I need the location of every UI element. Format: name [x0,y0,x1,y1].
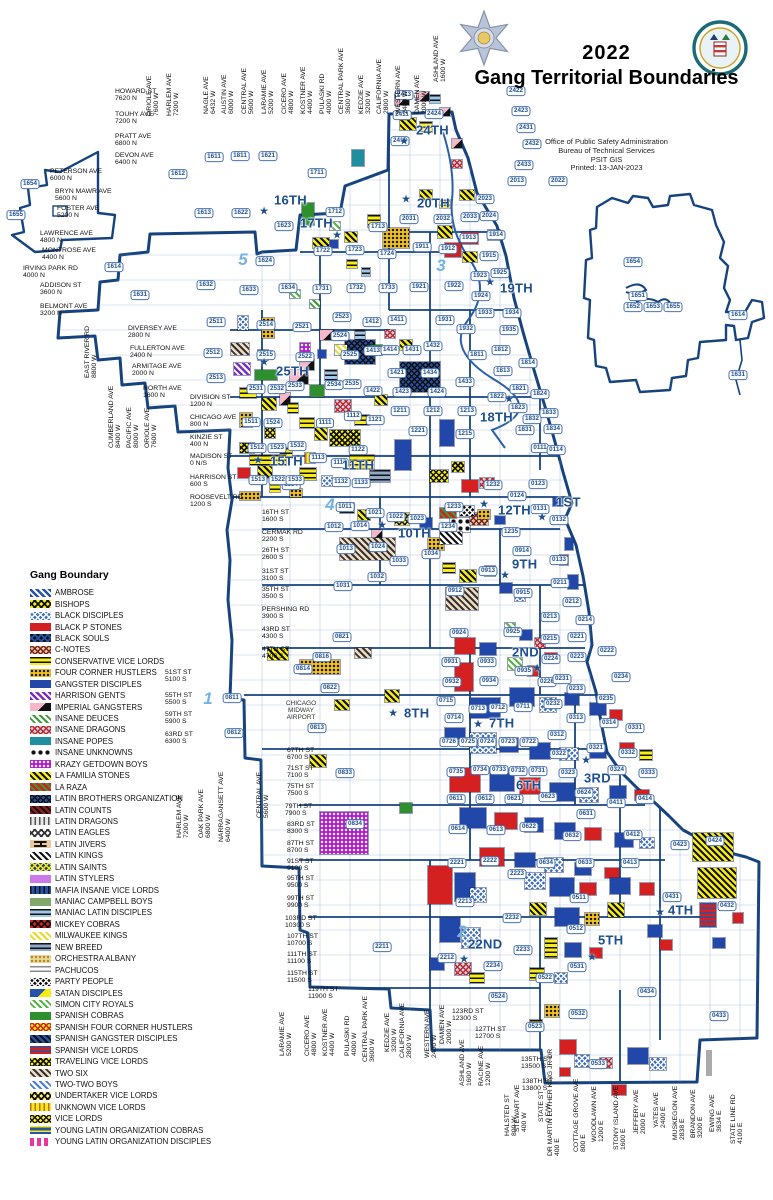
beat-number-label: 0413 [620,858,639,868]
street-name: PETERSON AVE [50,168,102,175]
beat-number-label: 1811 [231,151,250,161]
street-block-number: 11900 S [308,993,338,1000]
street-name: 111TH ST [287,951,317,958]
beat-number-label: 0512 [566,924,585,934]
beat-number-label: 2524 [330,331,349,341]
street-block-number: 6700 S [287,754,314,761]
street-name: 103RD ST [285,915,317,922]
street-label: 119TH ST11900 S [308,986,338,1000]
beat-number-label: 0634 [536,858,555,868]
beat-number-label: 1213 [457,406,476,416]
sector-number-label: 4 [325,495,334,515]
beat-number-label: 1533 [285,475,304,485]
legend-swatch-ylo_cobras [30,1126,51,1134]
beat-number-label: 1632 [196,280,215,290]
legend-item: LA FAMILIA STONES [30,770,265,781]
legend-item: LATIN BROTHERS ORGANIZATION [30,793,265,804]
beat-number-label: 1434 [420,368,439,378]
legend-label: INSANE DRAGONS [55,725,126,734]
beat-number-label: 0212 [562,597,581,607]
legend-swatch-latin_kings [30,852,51,860]
street-name: CALIFORNIA AVE [399,1003,406,1058]
street-name: 26TH ST [262,547,289,554]
street-name: MUSKEGON AVE [672,1086,679,1140]
street-label: PETERSON AVE6000 N [50,168,102,182]
legend-item: MAFIA INSANE VICE LORDS [30,884,265,895]
district-label-17th: 17TH [300,216,333,231]
beat-number-label: 2423 [511,106,530,116]
beat-number-label: 1523 [267,443,286,453]
street-block-number: 1600 N [143,392,182,399]
legend-swatch-imperial_gangsters [30,703,51,711]
beat-number-label: 1711 [308,168,327,178]
beat-number-label: 1433 [455,377,474,387]
beat-number-label: 1021 [365,508,384,518]
beat-number-label: 1935 [499,325,518,335]
police-station-star-icon: ★ [581,756,591,767]
beat-number-label: 2431 [516,123,535,133]
street-block-number: 1200 N [190,401,230,408]
beat-number-label: 0313 [566,713,585,723]
beat-number-label: 0714 [444,713,463,723]
scale-bar [706,1050,712,1076]
beat-number-label: 0632 [562,831,581,841]
beat-number-label: 1932 [456,324,475,334]
street-name: LAWRENCE AVE [40,230,93,237]
street-name: 95TH ST [287,875,314,882]
legend-label: TWO-TWO BOYS [55,1080,118,1089]
legend-swatch-milwaukee_kings [30,932,51,940]
street-name: JEFFERY AVE [633,1089,640,1134]
street-label-vertical: PACIFIC AVE8000 W [126,407,140,448]
map-page: CHICAGO MIDWAY AIRPORT 16541655161116121… [0,0,773,1200]
street-label: 26TH ST2600 S [262,547,289,561]
street-name: KOSTNER AVE [300,67,307,114]
street-name: WESTERN AVE [395,65,402,114]
district-label-12th: 12TH [498,503,531,518]
beat-number-label: 1613 [194,208,213,218]
district-label-19th: 19TH [500,281,533,296]
street-name: STATE LINE RD [730,1094,737,1144]
beat-number-label: 0932 [442,677,461,687]
beat-number-label: 0735 [446,767,465,777]
street-block-number: 3200 W [391,1013,398,1052]
street-label-vertical: NAGLE AVE6432 W [203,76,217,114]
beat-number-label: 0411 [607,798,626,808]
police-station-star-icon: ★ [479,500,489,511]
beat-number-label: 2024 [479,211,498,221]
legend-item: SATAN DISCIPLES [30,987,265,998]
legend-swatch-orchestra_albany [30,955,51,963]
legend-label: BISHOPS [55,600,90,609]
street-label: 107TH ST10700 S [287,933,318,947]
legend-item: LATIN DRAGONS [30,816,265,827]
legend-swatch-conservative_vice_lords [30,657,51,665]
police-station-star-icon: ★ [587,953,597,964]
legend-item: IMPERIAL GANGSTERS [30,701,265,712]
legend-swatch-mafia_insane_vice_lords [30,886,51,894]
beat-number-label: 0412 [623,830,642,840]
legend-item: MANIAC CAMPBELL BOYS [30,896,265,907]
police-station-star-icon: ★ [399,137,409,148]
beat-number-label: 1524 [263,418,282,428]
street-label: 115TH ST11500 S [287,970,317,984]
street-block-number: 7600 W [153,76,160,116]
beat-number-label: 0631 [576,809,595,819]
legend-item: LATIN COUNTS [30,804,265,815]
beat-number-label: 0813 [307,723,326,733]
street-label-vertical: DAMEN AVE2000 W [414,75,428,114]
street-label: 123RD ST12300 S [452,1008,484,1022]
street-label: 103RD ST10300 S [285,915,317,929]
legend-label: SPANISH GANGSTER DISCIPLES [55,1034,177,1043]
street-block-number: 12300 S [452,1015,484,1022]
street-name: ASHLAND AVE [459,1039,466,1086]
beat-number-label: 1232 [483,480,502,490]
beat-number-label: 0733 [489,765,508,775]
beat-number-label: 0221 [567,632,586,642]
beat-number-label: 1651 [628,291,647,301]
legend-item: CONSERVATIVE VICE LORDS [30,656,265,667]
beat-number-label: 1631 [728,370,747,380]
beat-number-label: 2512 [203,348,222,358]
street-label-vertical: CENTRAL PARK AVE3600 W [338,48,352,114]
legend-swatch-black_p_stones [30,623,51,631]
street-name: COTTAGE GROVE AVE [573,1079,580,1152]
legend-label: ORCHESTRA ALBANY [55,954,136,963]
street-name: EWING AVE [709,1094,716,1132]
street-name: BRYN MAWR AVE [55,188,112,195]
street-block-number: 7200 N [115,118,153,125]
beat-number-label: 2232 [502,913,521,923]
beat-number-label: 0434 [637,987,656,997]
beat-number-label: 1724 [377,249,396,259]
street-name: BRANDON AVE [690,1089,697,1138]
beat-number-label: 0432 [717,901,736,911]
beat-number-label: 0925 [503,627,522,637]
beat-number-label: 0933 [477,657,496,667]
beat-number-label: 1731 [312,284,331,294]
beat-number-label: 0621 [504,794,523,804]
street-label: 95TH ST9500 S [287,875,314,889]
beat-number-label: 1831 [515,425,534,435]
legend-swatch-traveling_vice_lords [30,1058,51,1066]
street-name: STONY ISLAND AVE [613,1086,620,1150]
legend-item: SPANISH COBRAS [30,1010,265,1021]
legend-label: LA RAZA [55,783,87,792]
legend-item: LA RAZA [30,781,265,792]
street-name: 71ST ST [287,765,314,772]
beat-number-label: 2031 [399,214,418,224]
beat-number-label: 2511 [207,317,226,327]
street-block-number: 7600 W [151,408,158,448]
legend-swatch-new_breed [30,943,51,951]
legend-label: TRAVELING VICE LORDS [55,1057,148,1066]
beat-number-label: 2532 [267,384,286,394]
street-label: 83RD ST8300 S [287,821,315,835]
beat-number-label: 0622 [519,822,538,832]
street-name: WOODLAWN AVE [591,1086,598,1142]
street-name: KOSTNER AVE [322,1009,329,1056]
legend-swatch-harrison_gents [30,692,51,700]
beat-number-label: 1031 [333,581,352,591]
street-label-vertical: WOODLAWN AVE1200 E [591,1086,605,1142]
legend-swatch-c_notes [30,646,51,654]
street-block-number: 3634 E [716,1094,723,1132]
street-block-number: 4800 W [311,1015,318,1056]
street-block-number: 2400 N [130,352,185,359]
police-station-star-icon: ★ [500,571,510,582]
beat-number-label: 0915 [513,588,532,598]
beat-number-label: 0322 [549,749,568,759]
legend-label: UNDERTAKER VICE LORDS [55,1091,157,1100]
beat-number-label: 0731 [528,766,547,776]
beat-number-label: 0821 [332,632,351,642]
beat-number-label: 0214 [575,615,594,625]
beat-number-label: 2513 [206,373,225,383]
street-block-number: 3500 S [262,593,289,600]
street-name: PRATT AVE [115,133,151,140]
beat-number-label: 1623 [274,221,293,231]
street-block-number: 3600 N [40,289,82,296]
street-block-number: 1600 W [466,1039,473,1086]
legend-swatch-insane_dragons [30,726,51,734]
beat-number-label: 0235 [596,694,615,704]
legend-item: TWO SIX [30,1067,265,1078]
street-block-number: 7900 S [285,810,312,817]
midway-airport-label: CHICAGO MIDWAY AIRPORT [278,700,324,721]
legend-item: INSANE POPES [30,736,265,747]
beat-number-label: 1612 [168,169,187,179]
beat-number-label: 0614 [448,824,467,834]
street-block-number: 9100 S [287,865,314,872]
police-station-star-icon: ★ [655,908,665,919]
beat-number-label: 1532 [287,441,306,451]
police-station-star-icon: ★ [259,207,269,218]
legend-item: SIMON CITY ROYALS [30,999,265,1010]
district-label-5th: 5TH [598,933,623,948]
legend-swatch-bishops [30,600,51,608]
street-name: STATE ST [538,1091,545,1122]
street-label: 111TH ST11100 S [287,951,317,965]
street-block-number: 2000 W [421,75,428,114]
beat-number-label: 0215 [540,634,559,644]
beat-number-label: 2531 [246,384,265,394]
street-name: 35TH ST [262,586,289,593]
legend-swatch-spanish_cobras [30,1012,51,1020]
police-station-star-icon: ★ [401,195,411,206]
beat-number-label: 1414 [380,345,399,355]
street-block-number: 12700 S [475,1033,506,1040]
street-name: CICERO AVE [304,1015,311,1056]
beat-number-label: 0424 [705,836,724,846]
beat-number-label: 0533 [588,1059,607,1069]
street-name: HARRISON ST [190,474,236,481]
beat-number-label: 1931 [435,315,454,325]
street-label: PERSHING RD3900 S [262,606,309,620]
legend-item: SPANISH GANGSTER DISCIPLES [30,1033,265,1044]
street-block-number: 2600 S [262,554,289,561]
legend-swatch-two_two_boys [30,1081,51,1089]
legend-label: INSANE POPES [55,737,113,746]
legend-swatch-spanish_gangster_disciples [30,1035,51,1043]
street-block-number: 4800 W [288,73,295,114]
legend-swatch-insane_deuces [30,715,51,723]
legend-swatch-party_people [30,978,51,986]
street-block-number: 9500 S [287,882,314,889]
street-label: DEVON AVE6400 N [115,152,154,166]
street-block-number: 4000 W [351,1016,358,1056]
police-station-star-icon: ★ [332,231,342,242]
street-name: PULASKI RD [344,1016,351,1056]
beat-number-label: 1622 [231,208,250,218]
street-name: ROOSEVELT RD [190,494,243,501]
street-label-vertical: KEDZIE AVE3200 W [384,1013,398,1052]
district-label-8th: 8TH [404,706,429,721]
street-label-vertical: KOSTNER AVE4400 W [322,1009,336,1056]
district-label-22nd: 22ND [468,937,502,952]
district-label-2nd: 2ND [512,645,539,660]
beat-number-label: 1624 [255,256,274,266]
beat-number-label: 2521 [292,322,311,332]
legend-swatch-insane_unknowns [30,749,51,757]
beat-number-label: 2211 [373,942,392,952]
beat-number-label: 1221 [408,426,427,436]
street-block-number: 1200 S [190,501,243,508]
legend-item: LATIN KINGS [30,850,265,861]
street-label: 47TH ST4700 S [262,646,289,660]
street-label-vertical: AUSTIN AVE6000 W [221,74,235,114]
beat-number-label: 2033 [460,212,479,222]
beat-number-label: 1621 [258,151,277,161]
street-label: 91ST ST9100 S [287,858,314,872]
legend-swatch-simon_city_royals [30,1000,51,1008]
street-block-number: 4400 N [42,254,96,261]
beat-number-label: 2533 [285,381,304,391]
beat-number-label: 1732 [346,283,365,293]
street-label-vertical: CALIFORNIA AVE2800 W [376,59,390,114]
beat-number-label: 1914 [486,230,505,240]
beat-number-label: 1012 [324,522,343,532]
street-block-number: 2400 E [660,1092,667,1128]
street-block-number: 2400 W [431,1009,438,1058]
legend-item: C-NOTES [30,644,265,655]
beat-number-label: 0223 [567,652,586,662]
beat-number-label: 0132 [549,515,568,525]
street-label-vertical: LARAMIE AVE5200 W [279,1012,293,1056]
street-label: ADDISON ST3600 N [40,282,82,296]
legend-title: Gang Boundary [30,569,265,581]
beat-number-label: 1513 [248,475,267,485]
legend-item: SPANISH VICE LORDS [30,1045,265,1056]
beat-number-label: 2222 [480,856,499,866]
street-name: 87TH ST [287,840,314,847]
legend-swatch-pachucos [30,966,51,974]
beat-number-label: 0934 [479,676,498,686]
street-block-number: 7200 W [173,73,180,116]
legend-item: BISHOPS [30,598,265,609]
street-block-number: 3100 S [262,575,289,582]
street-block-number: 4400 W [307,67,314,114]
legend-label: MILWAUKEE KINGS [55,931,127,940]
beat-number-label: 1924 [471,291,490,301]
beat-number-label: 1614 [728,310,747,320]
beat-number-label: 1111 [316,418,334,428]
street-label-vertical: STEWART AVE400 W [514,1085,528,1132]
street-label-vertical: WESTERN AVE2400 W [395,65,409,114]
beat-number-label: 1412 [362,317,381,327]
beat-number-label: 1813 [493,366,512,376]
legend-label: INSANE DEUCES [55,714,119,723]
beat-number-label: 0724 [477,737,496,747]
street-label: 79TH ST7900 S [285,803,312,817]
street-label-vertical: STONY ISLAND AVE1600 E [613,1086,627,1150]
street-name: IRVING PARK RD [23,265,78,272]
beat-number-label: 0333 [638,768,657,778]
street-block-number: 400 N [190,441,222,448]
beat-number-label: 1634 [278,283,297,293]
legend-item: LATIN EAGLES [30,827,265,838]
street-block-number: 5200 W [286,1012,293,1056]
street-name: 43RD ST [262,626,290,633]
beat-number-label: 1423 [392,387,411,397]
street-label-vertical: YATES AVE2400 E [653,1092,667,1128]
street-block-number: 2800 W [406,1003,413,1058]
beat-number-label: 0414 [635,794,654,804]
beat-number-label: 1934 [502,308,521,318]
street-label-vertical: KEDZIE AVE3200 W [358,75,372,114]
street-name: PACIFIC AVE [126,407,133,448]
street-label: 71ST ST7100 S [287,765,314,779]
street-block-number: 400 E [554,1049,561,1156]
legend-item: MILWAUKEE KINGS [30,930,265,941]
beat-number-label: 2523 [332,312,351,322]
beat-number-label: 0232 [543,699,562,709]
legend-item: TWO-TWO BOYS [30,1079,265,1090]
legend-item: MICKEY COBRAS [30,919,265,930]
street-name: 91ST ST [287,858,314,865]
beat-number-label: 1421 [387,368,406,378]
street-label: 67TH ST6700 S [287,747,314,761]
legend-item: INSANE DEUCES [30,713,265,724]
legend-label: MAFIA INSANE VICE LORDS [55,886,159,895]
beat-number-label: 1033 [389,556,408,566]
police-station-star-icon: ★ [459,955,469,966]
street-label-vertical: BRANDON AVE3200 E [690,1089,704,1138]
street-label: 127TH ST12700 S [475,1026,506,1040]
legend-label: MICKEY COBRAS [55,920,120,929]
street-name: DAMEN AVE [414,75,421,114]
legend-label: PARTY PEOPLE [55,977,114,986]
beat-number-label: 1011 [336,502,355,512]
street-name: NAGLE AVE [203,76,210,114]
beat-number-label: 0833 [335,768,354,778]
police-station-star-icon: ★ [537,513,547,524]
beat-number-label: 1022 [386,512,405,522]
beat-number-label: 0712 [488,703,507,713]
beat-number-label: 2522 [295,352,314,362]
legend-swatch-la_raza [30,783,51,791]
street-name: 47TH ST [262,646,289,653]
beat-number-label: 1933 [475,308,494,318]
street-block-number: 4100 E [737,1094,744,1144]
street-name: CICERO AVE [281,73,288,114]
beat-number-label: 0623 [538,792,557,802]
street-block-number: 4000 N [23,272,78,279]
district-label-4th: 4TH [668,903,693,918]
beat-number-label: 2233 [513,945,532,955]
street-label: FULLERTON AVE2400 N [130,345,185,359]
